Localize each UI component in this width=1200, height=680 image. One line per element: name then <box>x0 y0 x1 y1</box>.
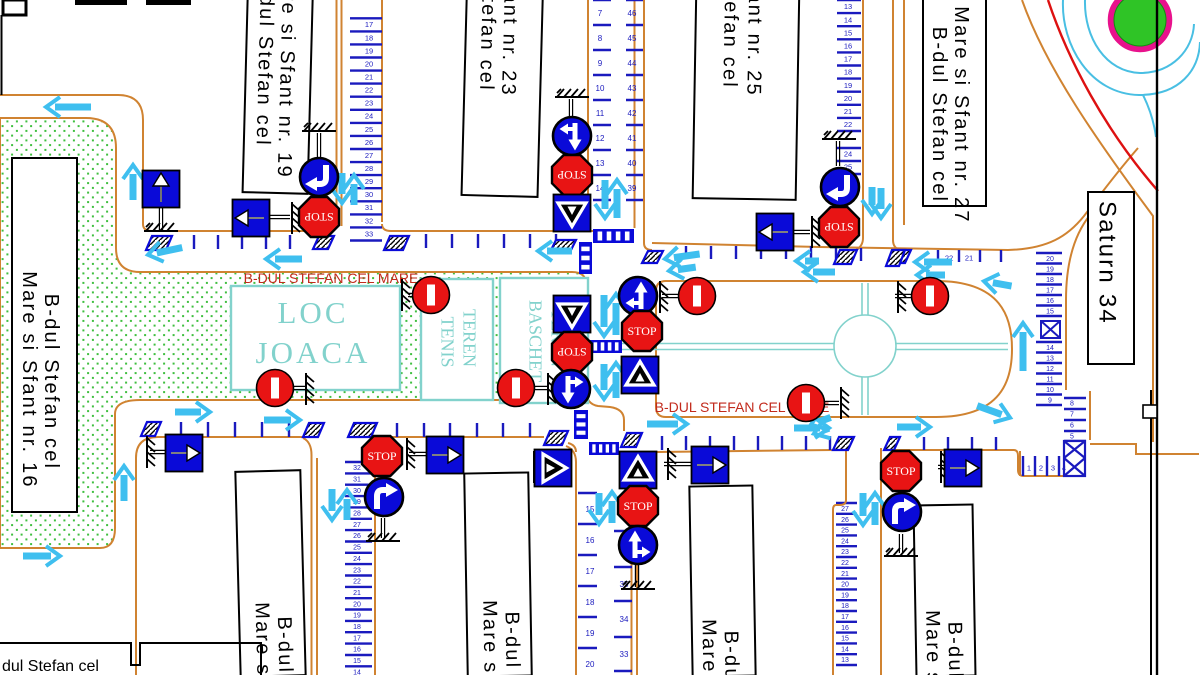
svg-text:21: 21 <box>353 590 361 597</box>
svg-text:45: 45 <box>628 34 637 43</box>
svg-text:28: 28 <box>365 164 373 173</box>
svg-text:27: 27 <box>365 151 373 160</box>
svg-text:39: 39 <box>628 184 637 193</box>
svg-text:dul Stefan cel: dul Stefan cel <box>2 658 99 675</box>
svg-text:20: 20 <box>1046 256 1054 263</box>
svg-text:12: 12 <box>596 134 605 143</box>
svg-text:41: 41 <box>628 134 637 143</box>
svg-text:32: 32 <box>353 465 361 472</box>
svg-text:B-dul Stefan cel: B-dul Stefan cel <box>718 0 743 89</box>
svg-text:26: 26 <box>353 533 361 540</box>
svg-text:Mare si Sfant nr. 27: Mare si Sfant nr. 27 <box>950 6 972 223</box>
svg-text:19: 19 <box>365 46 373 55</box>
svg-text:24: 24 <box>841 538 849 545</box>
svg-text:42: 42 <box>628 109 637 118</box>
svg-text:18: 18 <box>1046 277 1054 284</box>
svg-text:6: 6 <box>1070 423 1074 430</box>
svg-text:14: 14 <box>1046 345 1054 352</box>
svg-text:25: 25 <box>841 528 849 535</box>
svg-text:14: 14 <box>353 669 361 675</box>
svg-text:31: 31 <box>353 477 361 484</box>
svg-text:2: 2 <box>1039 464 1043 473</box>
svg-text:30: 30 <box>365 190 373 199</box>
svg-text:20: 20 <box>844 94 852 103</box>
svg-text:20: 20 <box>841 582 849 589</box>
svg-text:18: 18 <box>353 624 361 631</box>
svg-text:7: 7 <box>598 9 603 18</box>
svg-text:B-dul Stefan cel: B-dul Stefan cel <box>943 621 968 675</box>
svg-text:17: 17 <box>1046 288 1054 295</box>
svg-text:31: 31 <box>365 203 373 212</box>
svg-text:Saturn 34: Saturn 34 <box>1093 201 1120 325</box>
svg-text:27: 27 <box>353 522 361 529</box>
svg-text:17: 17 <box>365 20 373 29</box>
svg-text:B-dul Stefan cel: B-dul Stefan cel <box>928 27 950 203</box>
svg-text:13: 13 <box>596 159 605 168</box>
svg-text:21: 21 <box>841 571 849 578</box>
svg-text:23: 23 <box>353 567 361 574</box>
svg-text:Mare si Sfant nr. 16: Mare si Sfant nr. 16 <box>18 271 40 488</box>
svg-text:19: 19 <box>353 613 361 620</box>
svg-text:14: 14 <box>844 15 852 24</box>
svg-text:40: 40 <box>628 159 637 168</box>
svg-text:21: 21 <box>365 73 373 82</box>
svg-text:25: 25 <box>353 545 361 552</box>
svg-text:16: 16 <box>841 625 849 632</box>
svg-text:17: 17 <box>841 614 849 621</box>
svg-text:15: 15 <box>844 28 852 37</box>
svg-text:9: 9 <box>1048 398 1052 405</box>
svg-text:15: 15 <box>1046 309 1054 316</box>
svg-text:16: 16 <box>586 536 595 545</box>
svg-text:18: 18 <box>844 68 852 77</box>
svg-text:LOC: LOC <box>278 295 349 330</box>
svg-text:5: 5 <box>1070 434 1074 441</box>
svg-text:B-dul Stefan cel: B-dul Stefan cel <box>273 616 300 675</box>
svg-text:B-dul Stefan cel: B-dul Stefan cel <box>40 294 62 470</box>
svg-text:12: 12 <box>1046 366 1054 373</box>
svg-text:B-dul Stefan cel: B-dul Stefan cel <box>500 611 525 675</box>
svg-text:23: 23 <box>841 549 849 556</box>
svg-text:3: 3 <box>1051 464 1055 473</box>
svg-text:46: 46 <box>628 9 637 18</box>
svg-text:22: 22 <box>841 560 849 567</box>
svg-text:14: 14 <box>841 646 849 653</box>
svg-text:15: 15 <box>841 636 849 643</box>
svg-text:16: 16 <box>353 647 361 654</box>
svg-text:22: 22 <box>844 120 852 129</box>
svg-text:TENIS: TENIS <box>438 317 458 368</box>
svg-text:20: 20 <box>586 660 595 669</box>
svg-text:11: 11 <box>1046 377 1053 384</box>
svg-text:11: 11 <box>596 109 605 118</box>
svg-text:29: 29 <box>365 177 373 186</box>
svg-text:19: 19 <box>844 81 852 90</box>
svg-text:10: 10 <box>1046 387 1054 394</box>
svg-text:34: 34 <box>620 615 629 624</box>
svg-text:26: 26 <box>365 138 373 147</box>
svg-text:44: 44 <box>628 59 637 68</box>
svg-text:22: 22 <box>365 86 373 95</box>
svg-text:Mare si Sfant nr. 2: Mare si Sfant nr. 2 <box>478 600 504 675</box>
svg-text:19: 19 <box>1046 267 1054 274</box>
svg-text:22: 22 <box>353 579 361 586</box>
svg-text:33: 33 <box>365 229 373 238</box>
svg-text:30: 30 <box>353 488 361 495</box>
svg-text:18: 18 <box>841 603 849 610</box>
svg-text:43: 43 <box>628 84 637 93</box>
svg-text:13: 13 <box>841 657 849 664</box>
svg-text:24: 24 <box>844 150 852 159</box>
svg-text:17: 17 <box>353 635 361 642</box>
svg-text:15: 15 <box>353 658 361 665</box>
svg-text:TEREN: TEREN <box>460 309 480 367</box>
svg-text:18: 18 <box>586 598 595 607</box>
svg-text:JOACA: JOACA <box>256 335 371 370</box>
svg-text:10: 10 <box>596 84 605 93</box>
svg-text:19: 19 <box>586 629 595 638</box>
svg-text:32: 32 <box>365 216 373 225</box>
svg-text:Mare si Sfant nr. 1: Mare si Sfant nr. 1 <box>251 602 278 675</box>
svg-text:26: 26 <box>841 517 849 524</box>
svg-text:1: 1 <box>1027 464 1031 473</box>
svg-text:BASCHET: BASCHET <box>526 300 546 382</box>
svg-text:4: 4 <box>1062 464 1066 473</box>
svg-text:28: 28 <box>353 511 361 518</box>
svg-text:20: 20 <box>365 59 373 68</box>
svg-text:Mare si Sfant nr. 25: Mare si Sfant nr. 25 <box>742 0 768 97</box>
svg-text:27: 27 <box>841 506 849 513</box>
svg-text:Mare si Sfant nr. 2: Mare si Sfant nr. 2 <box>697 619 723 675</box>
svg-text:B-dul Stefan cel: B-dul Stefan cel <box>720 630 745 675</box>
svg-text:21: 21 <box>965 254 973 263</box>
svg-text:16: 16 <box>1046 298 1054 305</box>
svg-text:7: 7 <box>1070 412 1074 419</box>
svg-text:20: 20 <box>353 601 361 608</box>
svg-text:8: 8 <box>1070 401 1074 408</box>
svg-text:Mare si Sfant nr. 19: Mare si Sfant nr. 19 <box>273 0 301 179</box>
svg-text:9: 9 <box>598 59 603 68</box>
svg-text:33: 33 <box>620 650 629 659</box>
svg-text:8: 8 <box>598 34 603 43</box>
svg-text:13: 13 <box>1046 356 1054 363</box>
svg-text:23: 23 <box>365 99 373 108</box>
svg-text:13: 13 <box>844 2 852 11</box>
svg-text:17: 17 <box>586 567 595 576</box>
svg-text:16: 16 <box>844 42 852 51</box>
svg-text:24: 24 <box>353 556 361 563</box>
svg-text:19: 19 <box>841 592 849 599</box>
svg-text:Mare si Sfant nr. 2: Mare si Sfant nr. 2 <box>921 610 947 675</box>
svg-text:21: 21 <box>844 107 852 116</box>
svg-text:18: 18 <box>365 33 373 42</box>
svg-text:24: 24 <box>365 112 373 121</box>
svg-text:25: 25 <box>365 125 373 134</box>
svg-text:17: 17 <box>844 55 852 64</box>
svg-text:B-DUL STEFAN CEL MARE: B-DUL STEFAN CEL MARE <box>244 270 419 286</box>
